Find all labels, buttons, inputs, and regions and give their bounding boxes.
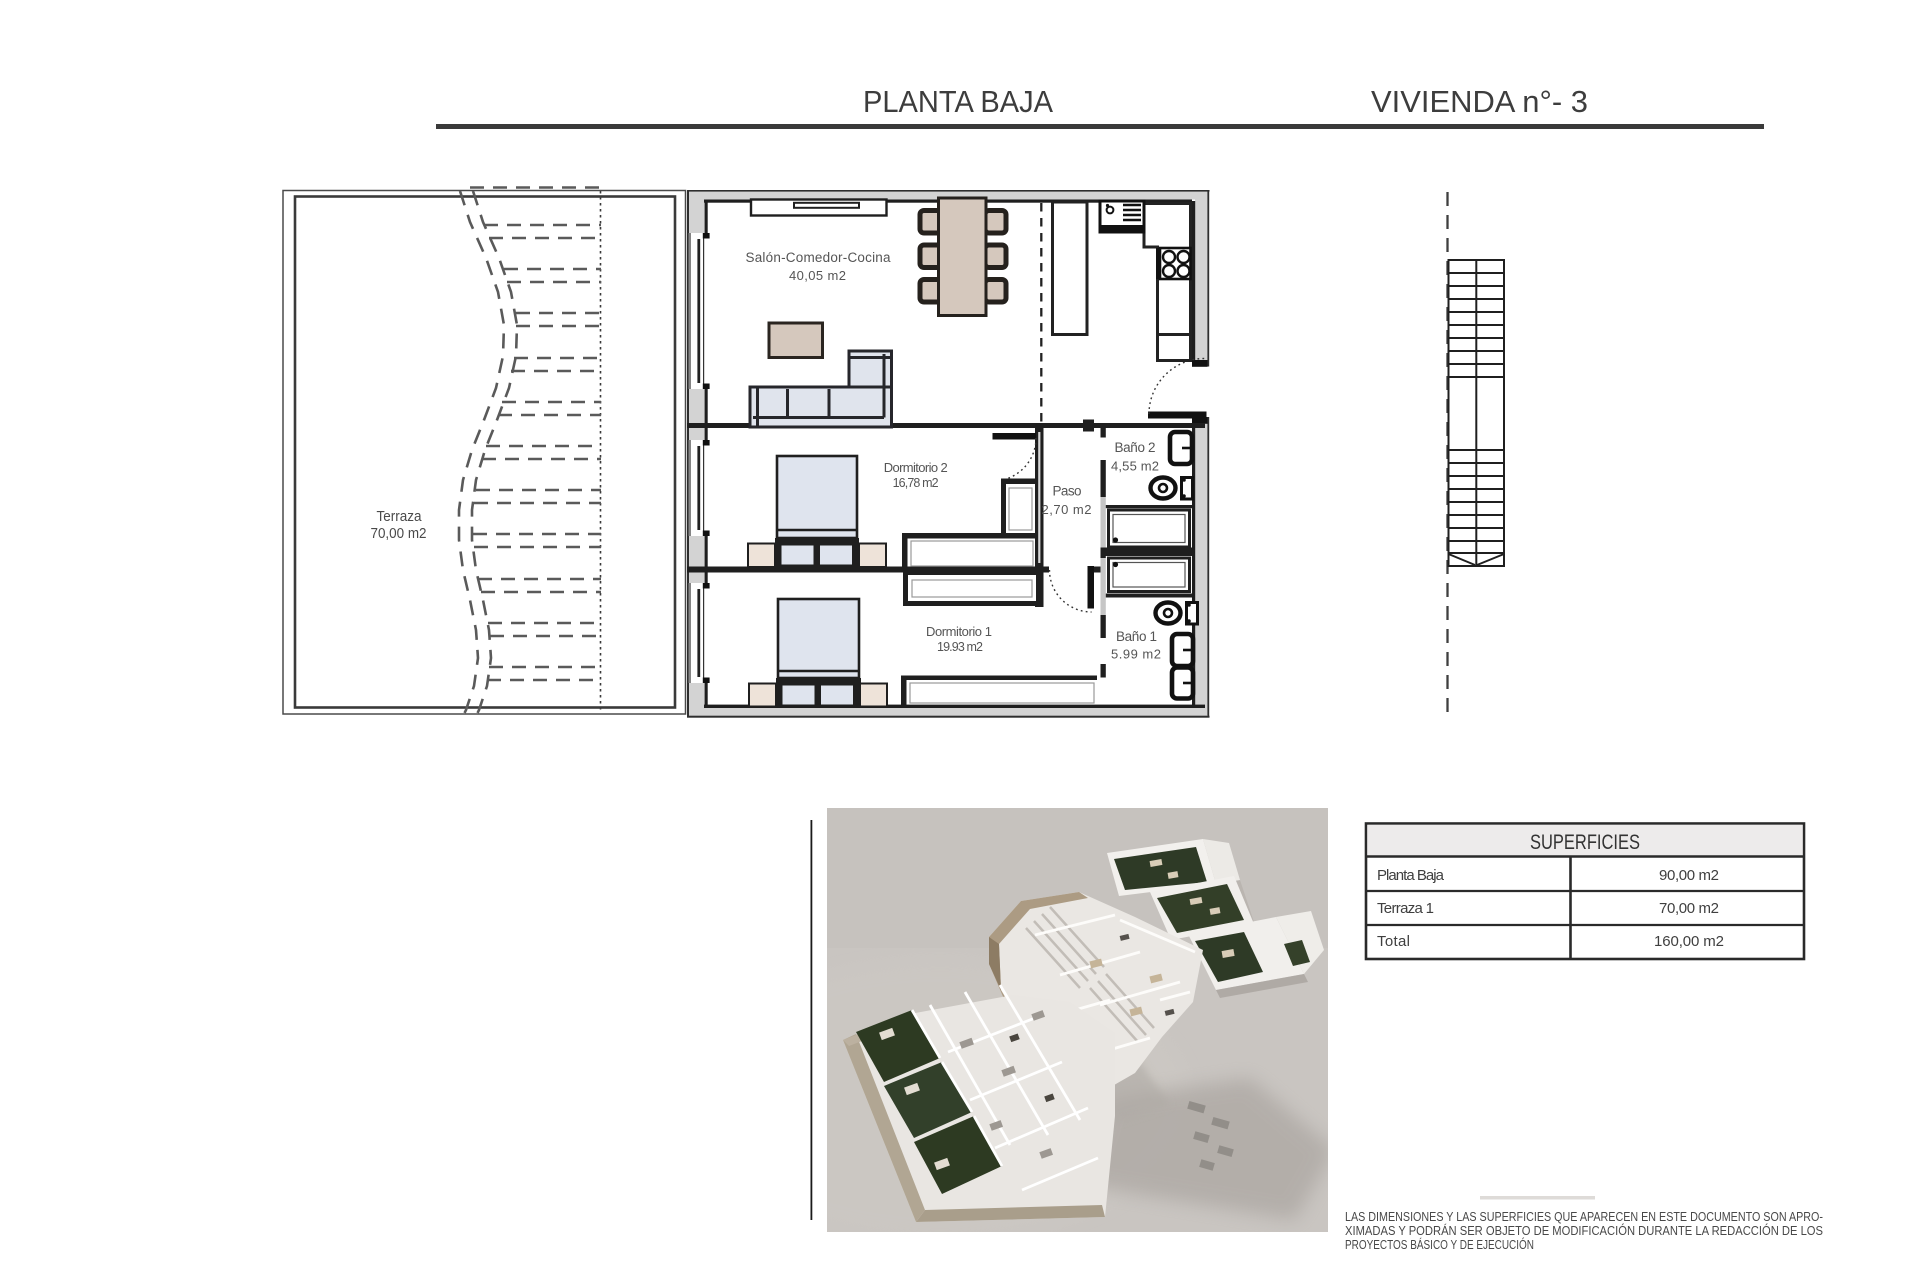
svg-text:PLANTA BAJA: PLANTA BAJA bbox=[863, 85, 1054, 119]
svg-text:19.93 m2: 19.93 m2 bbox=[937, 640, 983, 654]
svg-text:LAS DIMENSIONES Y LAS SUPERFIC: LAS DIMENSIONES Y LAS SUPERFICIES QUE AP… bbox=[1345, 1209, 1823, 1224]
svg-text:Salón-Comedor-Cocina: Salón-Comedor-Cocina bbox=[746, 250, 891, 265]
svg-text:2,70 m2: 2,70 m2 bbox=[1042, 502, 1092, 517]
svg-text:Dormitorio 1: Dormitorio 1 bbox=[926, 624, 992, 639]
svg-text:90,00 m2: 90,00 m2 bbox=[1659, 867, 1719, 884]
svg-text:Total: Total bbox=[1377, 933, 1410, 950]
svg-text:Terraza: Terraza bbox=[377, 509, 423, 525]
svg-text:16,78 m2: 16,78 m2 bbox=[893, 476, 939, 490]
svg-text:Terraza 1: Terraza 1 bbox=[1377, 900, 1434, 917]
svg-text:XIMADAS Y PODRÁN SER OBJETO DE: XIMADAS Y PODRÁN SER OBJETO DE MODIFICAC… bbox=[1345, 1223, 1823, 1238]
svg-text:VIVIENDA n°- 3: VIVIENDA n°- 3 bbox=[1371, 85, 1588, 119]
svg-text:SUPERFICIES: SUPERFICIES bbox=[1530, 831, 1640, 854]
svg-text:PROYECTOS BÁSICO Y DE EJECUCIÓ: PROYECTOS BÁSICO Y DE EJECUCIÓN bbox=[1345, 1237, 1534, 1252]
svg-text:Baño 2: Baño 2 bbox=[1115, 440, 1156, 455]
svg-text:70,00 m2: 70,00 m2 bbox=[1659, 900, 1719, 917]
svg-text:Dormitorio 2: Dormitorio 2 bbox=[884, 460, 948, 475]
svg-text:160,00 m2: 160,00 m2 bbox=[1654, 933, 1724, 950]
svg-text:Paso: Paso bbox=[1053, 484, 1082, 499]
svg-text:5.99 m2: 5.99 m2 bbox=[1111, 647, 1161, 662]
svg-text:Planta Baja: Planta Baja bbox=[1377, 867, 1445, 884]
svg-text:70,00 m2: 70,00 m2 bbox=[371, 526, 427, 542]
svg-text:4,55 m2: 4,55 m2 bbox=[1111, 459, 1159, 474]
svg-text:Baño 1: Baño 1 bbox=[1116, 629, 1157, 644]
svg-text:40,05 m2: 40,05 m2 bbox=[789, 268, 846, 283]
